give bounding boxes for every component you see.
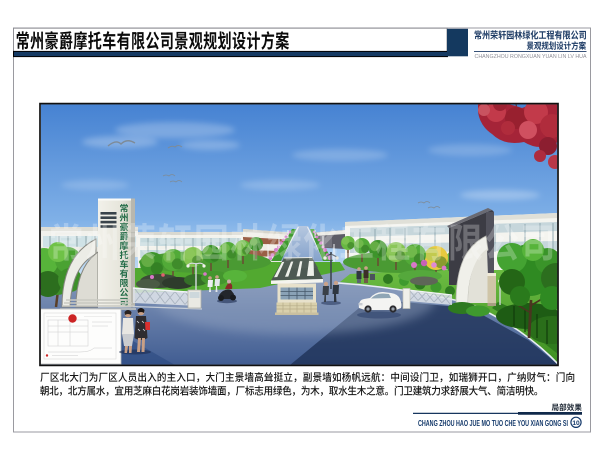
- svg-text:10: 10: [572, 420, 580, 427]
- svg-text:CHANGZHOU RONGXUAN YUAN LIN LV: CHANGZHOU RONGXUAN YUAN LIN LV HUA: [475, 54, 587, 60]
- svg-text:CHANG ZHOU HAO JUE MO TUO CHE: CHANG ZHOU HAO JUE MO TUO CHE YOU XIAN G…: [418, 418, 568, 428]
